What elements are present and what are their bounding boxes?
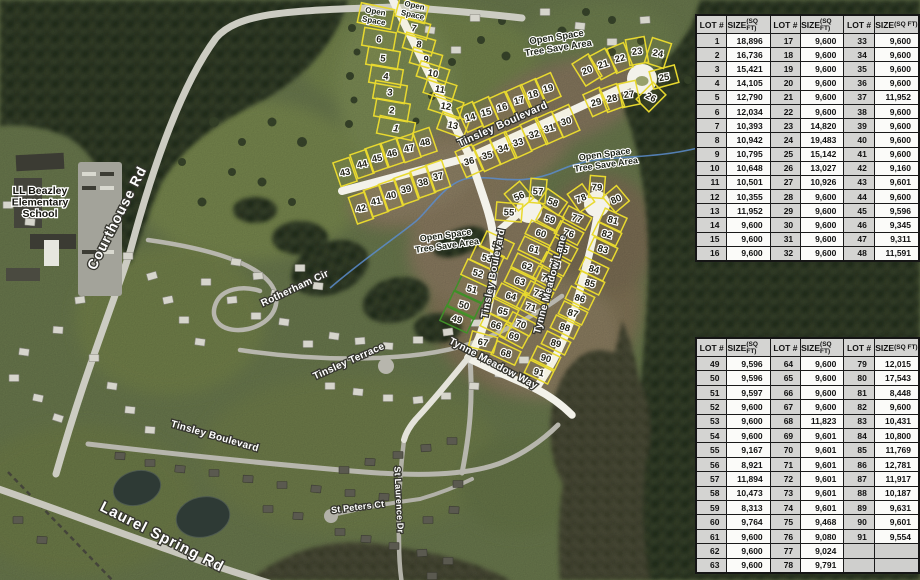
lot-size-cell: 9,600	[875, 148, 918, 161]
table-row: 5711,894729,6018711,917	[697, 472, 918, 486]
lot-number-cell: 61	[697, 530, 727, 543]
table-row: 159,600319,600479,311	[697, 233, 918, 247]
lot-size-cell: 9,311	[875, 233, 918, 246]
house	[123, 253, 133, 260]
lot-size-cell: 9,600	[875, 400, 918, 413]
table-row: 1010,6482613,027429,160	[697, 162, 918, 176]
lot-size-cell: 10,431	[875, 415, 918, 428]
house	[607, 39, 617, 46]
lot-size-cell: 9,080	[801, 530, 844, 543]
table-row: 710,3932314,820399,600	[697, 119, 918, 133]
table-row: 519,597669,600818,448	[697, 386, 918, 400]
lot-number-cell: 36	[844, 77, 874, 90]
lot-size-cell: 9,764	[727, 515, 770, 528]
house	[107, 382, 118, 390]
lot-number-cell: 35	[844, 62, 874, 75]
lot-size-cell: 10,473	[727, 487, 770, 500]
lot-number-cell: 75	[771, 515, 801, 528]
lot-size-cell: 9,600	[727, 415, 770, 428]
lot-number-cell: 65	[771, 371, 801, 384]
lot-size-cell	[875, 559, 918, 572]
lot-number-cell: 64	[771, 357, 801, 370]
lot-size-cell: 9,601	[801, 501, 844, 514]
lot-number: 40	[385, 189, 398, 202]
lot-cell: 79	[589, 175, 606, 198]
house	[13, 517, 23, 524]
house	[421, 444, 431, 452]
house	[453, 481, 463, 488]
table-row: 609,764759,468909,601	[697, 515, 918, 529]
lot-number: 6	[376, 34, 382, 45]
lot-size-cell: 9,601	[801, 443, 844, 456]
lot-size-cell: 9,600	[801, 371, 844, 384]
lot-number-cell: 37	[844, 91, 874, 104]
lot-size-cell: 8,313	[727, 501, 770, 514]
lot-number: 38	[417, 176, 430, 189]
lot-number: 55	[503, 207, 515, 219]
lot-number-cell: 9	[697, 148, 727, 161]
lot-size-cell: 9,600	[875, 190, 918, 203]
lot-size-cell: 9,600	[875, 133, 918, 146]
lot-number-cell: 26	[771, 162, 801, 175]
house	[227, 296, 238, 304]
lot-number-cell: 76	[771, 530, 801, 543]
table-row: 559,167709,6018511,769	[697, 443, 918, 457]
lot-number-cell: 47	[844, 233, 874, 246]
lot-size-cell: 10,795	[727, 148, 770, 161]
table-row: 512,790219,6003711,952	[697, 91, 918, 105]
lot-number-cell: 19	[771, 62, 801, 75]
lot-number: 37	[432, 170, 445, 183]
table-row: 1210,355289,600449,600	[697, 190, 918, 204]
lot-number-cell: 90	[844, 515, 874, 528]
lot-size-cell: 12,790	[727, 91, 770, 104]
lot-number-cell: 87	[844, 472, 874, 485]
lot-size-cell: 9,554	[875, 530, 918, 543]
lot-size-cell: 18,896	[727, 34, 770, 47]
lot-number-cell: 6	[697, 105, 727, 118]
table-row: 499,596649,6007912,015	[697, 357, 918, 371]
house	[339, 467, 349, 474]
lot-size-cell: 9,600	[801, 400, 844, 413]
lot-number: 43	[339, 166, 352, 179]
table-row: 5810,473739,6018810,187	[697, 487, 918, 501]
lot-number-cell: 58	[697, 487, 727, 500]
table-row: 529,600679,600829,600	[697, 400, 918, 414]
lot-number-cell: 78	[771, 559, 801, 572]
lot-number-cell: 77	[771, 544, 801, 557]
lot-size-cell: 11,917	[875, 472, 918, 485]
school-building-white	[44, 240, 59, 266]
table-row: 118,896179,600339,600	[697, 34, 918, 48]
header-size: SIZE(SQ FT)	[875, 339, 918, 356]
terrace-culdesac	[378, 358, 394, 374]
lot-number-cell: 69	[771, 429, 801, 442]
lot-size-cell: 9,345	[875, 218, 918, 231]
header-size: SIZE(SQ FT)	[727, 339, 770, 356]
lot-size-table-1: LOT #SIZE(SQ FT)LOT #SIZE(SQ FT)LOT #SIZ…	[695, 14, 920, 262]
lot-size-cell: 9,601	[801, 487, 844, 500]
lot-number-cell: 49	[697, 357, 727, 370]
culdesac-island	[636, 76, 649, 86]
lot-number: 12	[440, 100, 452, 113]
lot-size-cell: 9,600	[875, 119, 918, 132]
header-lot-number: LOT #	[771, 16, 801, 33]
house	[345, 490, 355, 497]
lot-number: 48	[419, 136, 432, 149]
lot-number-cell: 88	[844, 487, 874, 500]
lot-number-cell: 53	[697, 415, 727, 428]
lot-number: 42	[355, 202, 368, 215]
house	[253, 272, 264, 280]
house	[89, 355, 99, 362]
lot-number-cell: 27	[771, 176, 801, 189]
lot-number-cell: 42	[844, 162, 874, 175]
lot-size-cell: 9,600	[875, 62, 918, 75]
header-size: SIZE(SQ FT)	[727, 16, 770, 33]
lot-number-cell: 33	[844, 34, 874, 47]
lot-size-cell: 16,736	[727, 48, 770, 61]
lot-size-cell: 13,027	[801, 162, 844, 175]
lot-number-cell: 48	[844, 247, 874, 260]
header-size: SIZE(SQ FT)	[801, 16, 844, 33]
lot-size-cell: 9,600	[727, 544, 770, 557]
lot-size-cell: 11,894	[727, 472, 770, 485]
lot-size-cell: 9,600	[801, 91, 844, 104]
house	[279, 318, 290, 326]
lot-size-cell: 9,600	[727, 233, 770, 246]
lot-size-table-2: LOT #SIZE(SQ FT)LOT #SIZE(SQ FT)LOT #SIZ…	[695, 337, 920, 574]
house	[53, 326, 63, 334]
house	[361, 535, 371, 543]
lot-size-cell: 10,942	[727, 133, 770, 146]
lot-number-cell: 17	[771, 34, 801, 47]
lot-size-cell: 10,393	[727, 119, 770, 132]
lot-number-cell: 79	[844, 357, 874, 370]
house	[209, 470, 219, 477]
house	[470, 15, 480, 22]
house	[179, 317, 189, 324]
lot-number-cell: 62	[697, 544, 727, 557]
school-label-line: LL Beazley	[13, 185, 68, 197]
house	[243, 475, 253, 483]
lot-number-cell: 81	[844, 386, 874, 399]
lot-size-cell: 9,600	[727, 400, 770, 413]
table-row: 568,921719,6018612,781	[697, 458, 918, 472]
lot-size-cell: 9,600	[801, 357, 844, 370]
house	[640, 16, 650, 24]
lot-size-cell: 9,600	[875, 34, 918, 47]
table-row: 169,600329,6004811,591	[697, 247, 918, 260]
lot-size-cell: 9,600	[727, 429, 770, 442]
lot-size-cell: 9,596	[727, 371, 770, 384]
house	[417, 549, 427, 557]
lot-size-cell: 9,596	[727, 357, 770, 370]
lot-number-cell: 55	[697, 443, 727, 456]
lot-number-cell: 44	[844, 190, 874, 203]
lot-size-cell: 10,187	[875, 487, 918, 500]
lot-size-cell: 9,600	[801, 204, 844, 217]
lot-number-cell: 38	[844, 105, 874, 118]
lot-number-cell: 11	[697, 176, 727, 189]
lot-number-cell: 4	[697, 77, 727, 90]
lot-size-cell: 9,600	[801, 386, 844, 399]
lot-size-cell: 9,601	[875, 176, 918, 189]
lot-number: 79	[591, 182, 602, 194]
house	[451, 47, 461, 54]
house	[325, 383, 335, 390]
lot-size-cell: 9,601	[801, 472, 844, 485]
lot-number-cell: 43	[844, 176, 874, 189]
lot-number-cell: 50	[697, 371, 727, 384]
lot-number-cell: 66	[771, 386, 801, 399]
house	[201, 279, 211, 286]
lot-number: 27	[623, 89, 635, 101]
lot-size-cell: 9,600	[801, 190, 844, 203]
table-row: 910,7952515,142419,600	[697, 148, 918, 162]
lot-size-cell: 9,600	[801, 218, 844, 231]
lot-number: 3	[387, 87, 393, 98]
lot-number-cell: 1	[697, 34, 727, 47]
lot-number-cell: 71	[771, 458, 801, 471]
house	[365, 458, 375, 466]
lot-size-cell: 17,543	[875, 371, 918, 384]
lot-number-cell: 70	[771, 443, 801, 456]
lot-size-cell: 9,601	[801, 429, 844, 442]
lot-size-cell: 9,600	[875, 48, 918, 61]
lot-number: 2	[389, 105, 395, 116]
school-building	[16, 153, 65, 171]
house	[75, 296, 86, 304]
house	[293, 512, 303, 520]
lot-number-cell: 51	[697, 386, 727, 399]
house	[427, 573, 437, 580]
table-row: 315,421199,600359,600	[697, 62, 918, 76]
lot-size-cell: 9,024	[801, 544, 844, 557]
lot-number-cell: 67	[771, 400, 801, 413]
header-lot-number: LOT #	[844, 16, 874, 33]
lot-number-cell: 56	[697, 458, 727, 471]
lot-size-cell: 9,600	[801, 105, 844, 118]
lot-number-cell: 21	[771, 91, 801, 104]
lot-size-cell: 9,600	[875, 77, 918, 90]
lot-number-cell: 3	[697, 62, 727, 75]
lot-number-cell: 89	[844, 501, 874, 514]
lot-number-cell: 91	[844, 530, 874, 543]
lot-size-cell: 10,800	[875, 429, 918, 442]
lot-size-cell: 9,600	[801, 48, 844, 61]
lot-number-cell: 29	[771, 204, 801, 217]
lot-number-cell: 82	[844, 400, 874, 413]
house	[441, 393, 451, 400]
lot-number: 13	[446, 119, 459, 132]
house	[115, 452, 125, 460]
lot-number-cell: 34	[844, 48, 874, 61]
lot-number-cell	[844, 544, 874, 557]
lot-size-cell: 10,355	[727, 190, 770, 203]
lot-size-cell: 10,648	[727, 162, 770, 175]
school-label-line: Elementary	[12, 197, 69, 209]
lot-size-cell: 12,015	[875, 357, 918, 370]
lot-number-cell: 5	[697, 91, 727, 104]
house	[540, 9, 550, 16]
house	[19, 348, 30, 356]
lot-number-cell: 72	[771, 472, 801, 485]
lot-number-cell: 68	[771, 415, 801, 428]
lot-size-cell: 12,781	[875, 458, 918, 471]
lot-number-cell: 46	[844, 218, 874, 231]
table-row: 216,736189,600349,600	[697, 48, 918, 62]
lot-number-cell: 23	[771, 119, 801, 132]
house	[37, 536, 47, 544]
lot-size-cell: 14,820	[801, 119, 844, 132]
lot-size-cell: 9,600	[727, 530, 770, 543]
lot-number-cell: 28	[771, 190, 801, 203]
table-row: 414,105209,600369,600	[697, 77, 918, 91]
lot-size-cell: 12,034	[727, 105, 770, 118]
lot-number-cell: 15	[697, 233, 727, 246]
house	[447, 438, 457, 445]
lot-size-cell: 15,142	[801, 148, 844, 161]
lot-number-cell: 41	[844, 148, 874, 161]
lot-size-cell: 9,600	[801, 34, 844, 47]
table-row: 810,9422419,483409,600	[697, 133, 918, 147]
house	[413, 337, 423, 344]
lot-size-cell: 8,448	[875, 386, 918, 399]
table-row: 149,600309,600469,345	[697, 218, 918, 232]
lot-size-cell: 9,160	[875, 162, 918, 175]
house	[311, 485, 322, 493]
lot-number-cell: 13	[697, 204, 727, 217]
lot-number-cell: 31	[771, 233, 801, 246]
lot-number-cell: 18	[771, 48, 801, 61]
lot-number: 23	[631, 46, 643, 58]
lot-number-cell	[844, 559, 874, 572]
table-row: 639,600789,791	[697, 559, 918, 572]
header-lot-number: LOT #	[697, 16, 727, 33]
lot-size-cell: 9,631	[875, 501, 918, 514]
header-lot-number: LOT #	[844, 339, 874, 356]
lot-size-cell: 9,600	[727, 247, 770, 260]
house	[231, 258, 242, 266]
table-row: 629,600779,024	[697, 544, 918, 558]
lot-size-cell: 9,600	[801, 62, 844, 75]
lot-size-cell: 14,105	[727, 77, 770, 90]
house	[125, 406, 136, 414]
lot-number-cell: 59	[697, 501, 727, 514]
lot-number: 28	[606, 92, 619, 105]
lot-number-cell: 25	[771, 148, 801, 161]
lot-size-cell: 9,600	[875, 105, 918, 118]
lot-size-cell: 9,601	[875, 515, 918, 528]
lot-size-cell: 9,468	[801, 515, 844, 528]
lot-number-cell: 52	[697, 400, 727, 413]
house	[469, 382, 479, 390]
lot-size-cell	[875, 544, 918, 557]
lot-size-cell: 11,952	[727, 204, 770, 217]
house	[383, 395, 393, 402]
lot-size-cell: 11,952	[875, 91, 918, 104]
lot-number: 67	[477, 337, 489, 350]
lot-number-cell: 32	[771, 247, 801, 260]
lot-number-cell: 60	[697, 515, 727, 528]
lot-size-cell: 11,823	[801, 415, 844, 428]
header-size: SIZE(SQ FT)	[875, 16, 918, 33]
lot-size-cell: 10,926	[801, 176, 844, 189]
lot-number-cell: 83	[844, 415, 874, 428]
table-row: 619,600769,080919,554	[697, 530, 918, 544]
lot-number-cell: 40	[844, 133, 874, 146]
header-size: SIZE(SQ FT)	[801, 339, 844, 356]
lot-number-cell: 30	[771, 218, 801, 231]
lot-size-cell: 11,769	[875, 443, 918, 456]
lot-size-cell: 9,601	[801, 458, 844, 471]
lot-number-cell: 20	[771, 77, 801, 90]
lot-number: 47	[403, 142, 416, 155]
table-row: 539,6006811,8238310,431	[697, 415, 918, 429]
house	[353, 388, 364, 396]
lot-size-cell: 9,600	[801, 233, 844, 246]
lot-size-cell: 9,600	[801, 77, 844, 90]
lot-number: 46	[386, 147, 399, 160]
house	[251, 313, 261, 320]
lot-map-page: 6543217891011121314151617181920212223242…	[0, 0, 920, 580]
lot-number-cell: 10	[697, 162, 727, 175]
house	[277, 482, 287, 489]
lot-number-cell: 57	[697, 472, 727, 485]
lot-number-cell: 8	[697, 133, 727, 146]
lot-size-cell: 10,501	[727, 176, 770, 189]
table-row: 509,596659,6008017,543	[697, 371, 918, 385]
house	[263, 506, 273, 513]
house	[519, 357, 529, 364]
lot-number: 39	[400, 183, 413, 196]
house	[443, 558, 453, 565]
house	[295, 265, 305, 272]
table-row: 598,313749,601899,631	[697, 501, 918, 515]
lot-size-cell: 9,791	[801, 559, 844, 572]
lot-number-cell: 14	[697, 218, 727, 231]
lot-size-cell: 19,483	[801, 133, 844, 146]
lot-size-cell: 15,421	[727, 62, 770, 75]
table-row: 549,600699,6018410,800	[697, 429, 918, 443]
lot-size-cell: 9,597	[727, 386, 770, 399]
house	[303, 341, 313, 348]
house	[195, 338, 206, 346]
table-row: 1311,952299,600459,596	[697, 204, 918, 218]
lot-size-cell: 9,167	[727, 443, 770, 456]
school-label-line: School	[22, 208, 57, 220]
house	[9, 375, 19, 382]
lot-size-cell: 9,600	[801, 247, 844, 260]
house	[413, 396, 424, 404]
lot-number-cell: 84	[844, 429, 874, 442]
lot-number-cell: 12	[697, 190, 727, 203]
lot-size-cell: 9,600	[727, 218, 770, 231]
house	[335, 529, 345, 536]
house	[175, 465, 186, 473]
table-header-row: LOT #SIZE(SQ FT)LOT #SIZE(SQ FT)LOT #SIZ…	[697, 339, 918, 357]
school-building	[6, 268, 40, 281]
lot-number-cell: 39	[844, 119, 874, 132]
lot-size-cell: 11,591	[875, 247, 918, 260]
table-row: 1110,5012710,926439,601	[697, 176, 918, 190]
lot-number-cell: 24	[771, 133, 801, 146]
lot-number-cell: 16	[697, 247, 727, 260]
lot-number-cell: 7	[697, 119, 727, 132]
lot-number-cell: 74	[771, 501, 801, 514]
lot-size-cell: 8,921	[727, 458, 770, 471]
